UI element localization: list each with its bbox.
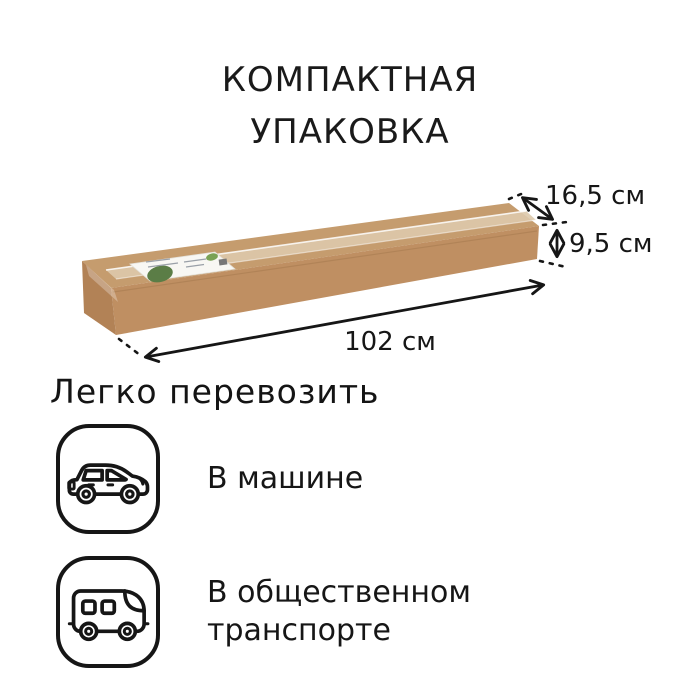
length-value: 102 см — [344, 327, 436, 357]
transport-item-car: В машине — [56, 424, 363, 534]
label-barcode — [219, 258, 228, 265]
transport-item-bus: В общественном транспорте — [56, 556, 487, 668]
car-icon — [66, 449, 150, 509]
transport-label-car: В машине — [207, 460, 363, 498]
cardboard-box — [82, 203, 539, 335]
height-value: 9,5 см — [569, 229, 653, 259]
title-line-1: КОМПАКТНАЯ — [0, 54, 700, 106]
height-dimension: 9,5 см — [540, 229, 653, 267]
bus-icon-card — [56, 556, 160, 668]
page-title: КОМПАКТНАЯ УПАКОВКА — [0, 54, 700, 158]
depth-value: 16,5 см — [545, 181, 645, 211]
transport-label-bus: В общественном транспорте — [207, 574, 487, 650]
bus-icon — [66, 580, 150, 644]
package-box-illustration: 16,5 см 9,5 см 102 см — [0, 155, 700, 405]
car-icon-card — [56, 424, 160, 534]
title-line-2: УПАКОВКА — [0, 106, 700, 158]
transport-heading: Легко перевозить — [50, 372, 380, 411]
product-infographic: КОМПАКТНАЯ УПАКОВКА — [0, 0, 700, 700]
